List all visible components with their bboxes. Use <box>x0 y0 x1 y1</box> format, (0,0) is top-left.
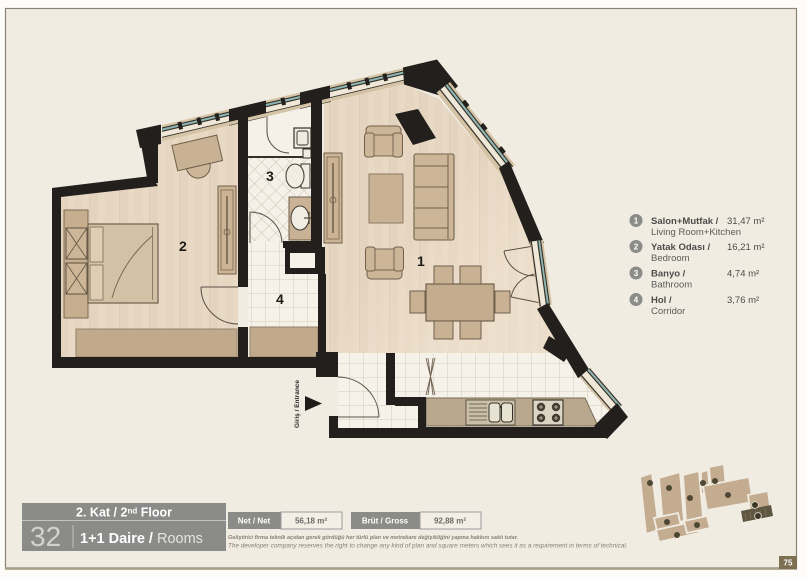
svg-text:32: 32 <box>30 521 61 552</box>
svg-text:Brüt / Gross: Brüt / Gross <box>362 517 409 526</box>
svg-text:Giriş / Entrance: Giriş / Entrance <box>294 380 301 428</box>
svg-text:3,76 m²: 3,76 m² <box>727 295 759 306</box>
svg-text:1: 1 <box>417 253 425 269</box>
svg-text:Net / Net: Net / Net <box>238 517 271 526</box>
svg-text:31,47 m²: 31,47 m² <box>727 216 765 227</box>
svg-text:4: 4 <box>276 291 284 307</box>
svg-text:2: 2 <box>634 243 639 252</box>
svg-text:Yatak Odası /: Yatak Odası / <box>651 242 711 253</box>
svg-text:2. Kat / 2nd Floor: 2. Kat / 2nd Floor <box>76 506 172 520</box>
svg-text:75: 75 <box>784 559 793 568</box>
svg-text:Bathroom: Bathroom <box>651 280 692 291</box>
svg-text:56,18 m²: 56,18 m² <box>295 517 327 526</box>
svg-text:Hol /: Hol / <box>651 295 672 306</box>
svg-text:92,88 m²: 92,88 m² <box>434 517 466 526</box>
svg-text:1: 1 <box>634 217 639 226</box>
svg-text:1+1 Daire / Rooms: 1+1 Daire / Rooms <box>80 531 203 547</box>
svg-text:The developer company reserves: The developer company reserves the right… <box>228 543 628 550</box>
svg-text:Corridor: Corridor <box>651 306 685 317</box>
svg-text:Salon+Mutfak /: Salon+Mutfak / <box>651 216 719 227</box>
svg-text:Living Room+Kitchen: Living Room+Kitchen <box>651 227 741 238</box>
svg-text:Bedroom: Bedroom <box>651 253 690 264</box>
svg-text:2: 2 <box>179 238 187 254</box>
svg-text:3: 3 <box>634 269 639 278</box>
svg-text:Banyo /: Banyo / <box>651 269 686 280</box>
svg-text:3: 3 <box>266 168 274 184</box>
svg-text:4,74 m²: 4,74 m² <box>727 269 759 280</box>
svg-text:4: 4 <box>634 296 639 305</box>
svg-text:16,21 m²: 16,21 m² <box>727 242 765 253</box>
svg-text:Geliştirici firma teknik açıda: Geliştirici firma teknik açıdan gerek gö… <box>228 535 519 541</box>
